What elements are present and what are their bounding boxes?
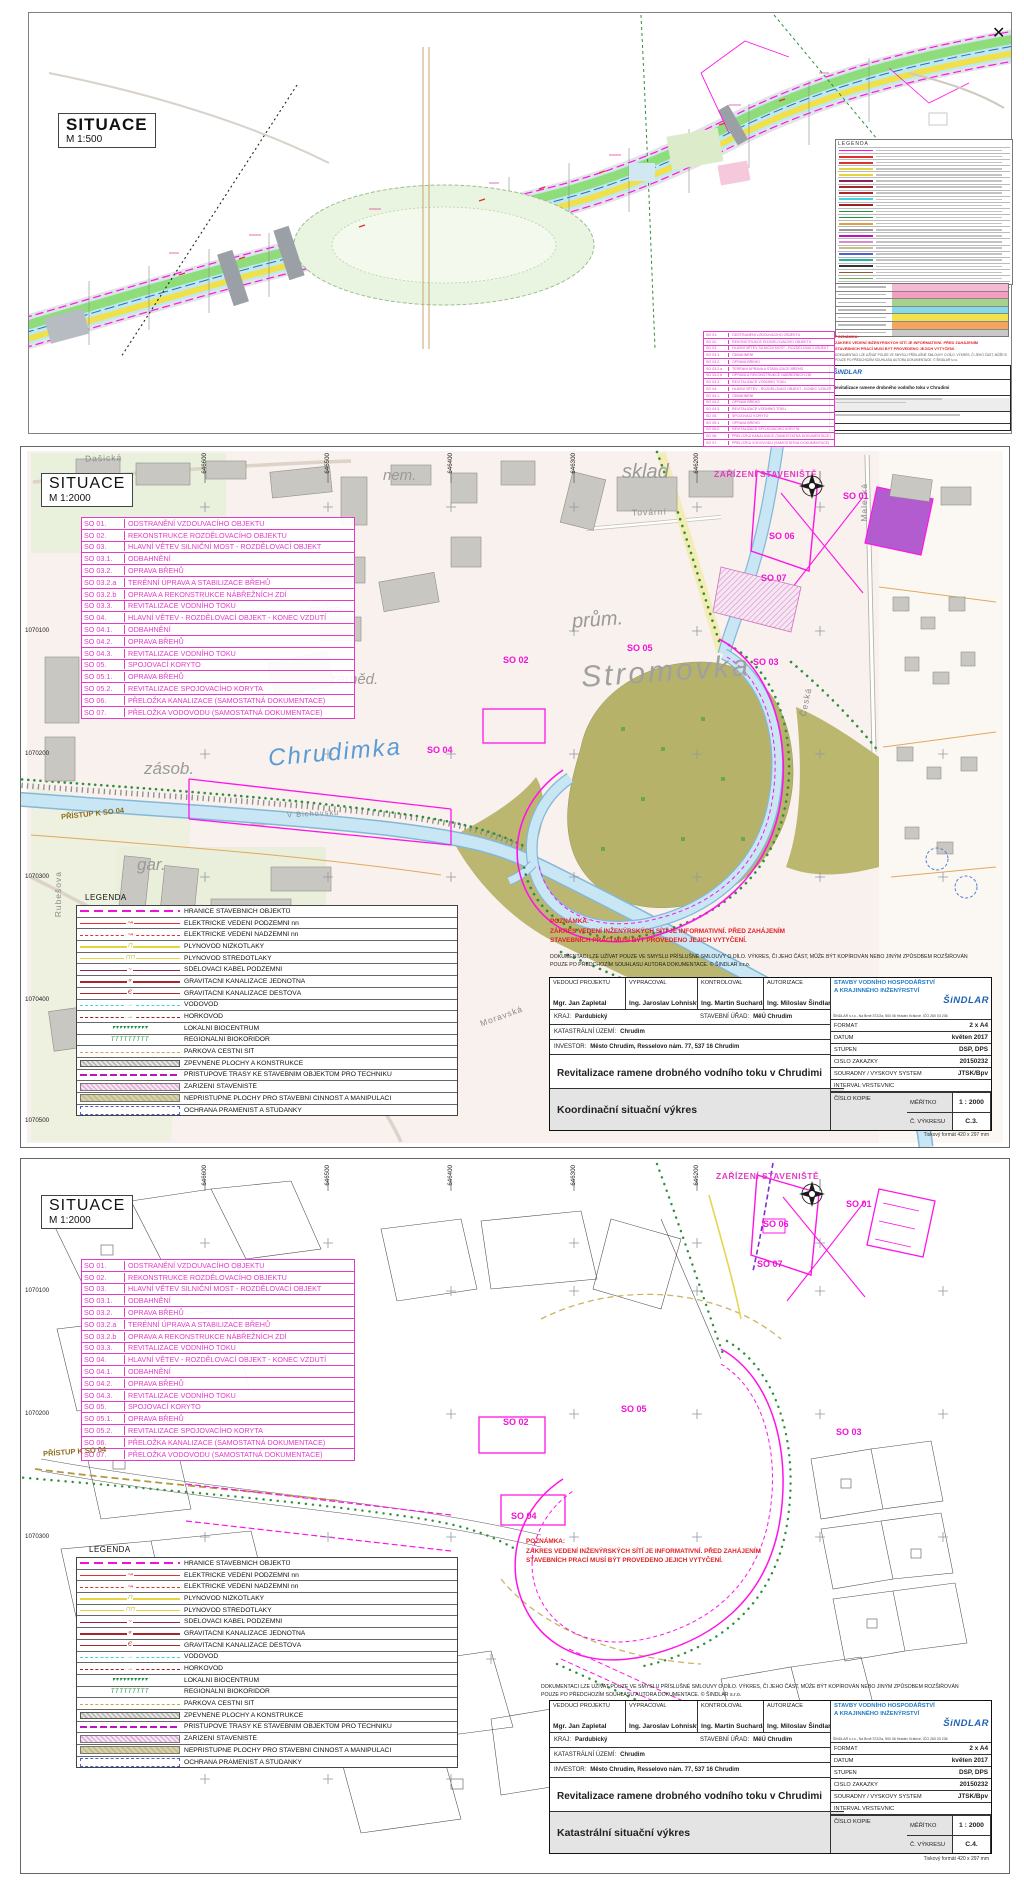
cadastre-row: KATASTRÁLNÍ ÚZEMÍ:Chrudim (550, 1025, 830, 1040)
note-line: STAVEBNÍCH PRACÍ MUSÍ BÝT PROVEDENO JEJI… (526, 1557, 723, 1564)
so-table-row: SO 01. ODSTRANĚNÍ VZDOUVACÍHO OBJEKTU (82, 518, 354, 529)
legend-row: « GRAVITAČNÍ KANALIZACE JEDNOTNÁ (77, 1627, 457, 1639)
legend-label: NEPŘÍSTUPNÉ PLOCHY PRO STAVEBNÍ ČINNOST … (184, 1747, 391, 1754)
so-code: SO 03.1. (82, 1296, 125, 1305)
legend-glyph: ⊓ (127, 1595, 134, 1601)
so-table-row: SO 02. REKONSTRUKCE ROZDĚLOVACÍHO OBJEKT… (82, 529, 354, 541)
field-value: 20150232 (932, 1058, 991, 1065)
legend-swatch (80, 907, 180, 916)
north-arrow-icon (799, 1181, 825, 1207)
title-block-fields: FORMÁT 2 x A4 DATUM květen 2017 STUPEŇ D… (831, 1020, 991, 1092)
so-table-row: SO 02. REKONSTRUKCE ROZDĚLOVACÍHO OBJEKT… (82, 1271, 354, 1283)
so-label: TERÉNNÍ ÚPRAVA A STABILIZACE BŘEHŮ (125, 578, 273, 587)
note-heading: POZNÁMKA: (835, 334, 859, 339)
copyright-block: DOKUMENTACI LZE UŽÍVAT POUZE VE SMYSLU P… (550, 953, 968, 969)
so-code: SO 04.1. (82, 1367, 125, 1376)
legend-swatch: « (80, 1629, 180, 1638)
investor-row: INVESTOR:Město Chrudim, Resselovo nám. 7… (550, 1763, 830, 1778)
role-name: Ing. Jaroslav Lohniský (629, 1723, 694, 1730)
legend-label: HRANICE STAVEBNÍCH OBJEKTŮ (184, 1560, 290, 1567)
so-code: SO 04. (82, 1355, 125, 1364)
so-objects-table: SO 01. ODSTRANĚNÍ VZDOUVACÍHO OBJEKTU SO… (703, 331, 835, 447)
so-table-row: SO 05.1. OPRAVA BŘEHŮ (82, 670, 354, 682)
sheet-number-label: Č. VÝKRESU (907, 1835, 953, 1853)
role-label: KONTROLOVAL (701, 980, 760, 986)
so-label: OPRAVA BŘEHŮ (125, 1379, 187, 1388)
legend-glyph: ↝ (126, 920, 133, 926)
legend-label: ELEKTRICKÉ VEDENÍ NADZEMNÍ nn (184, 1583, 298, 1590)
legend-label: PŘÍSTUPOVÉ TRASY KE STAVEBNÍM OBJEKTŮM P… (184, 1723, 392, 1730)
titleblock-field-row: FORMÁT 2 x A4 (831, 1020, 991, 1032)
legend-row: TTTTTTTTT REGIONÁLNÍ BIOKORIDOR (77, 1686, 457, 1698)
legend-row: ~ SDĚLOVACÍ KABEL PODZEMNÍ (77, 1615, 457, 1627)
northing-label: 1070300 (25, 1533, 49, 1540)
titleblock-field-row: SOUŘADNÝ / VÝŠKOVÝ SYSTÉM JTSK/Bpv (831, 1068, 991, 1080)
legend-row: OCHRANA PRAMENIŠŤ A STUDÁNKY (77, 1756, 457, 1768)
northing-label: 1070200 (25, 750, 49, 757)
so-table-row: SO 04.3. REVITALIZACE VODNÍHO TOKU (704, 405, 834, 412)
legend-label: REGIONÁLNÍ BIOKORIDOR (184, 1036, 270, 1043)
title-block-small: ŠiNDLAR Revitalizace ramene drobného vod… (829, 365, 1011, 431)
street-label-dasicka: Dašická (85, 452, 123, 463)
legend-swatch: → (80, 1664, 180, 1673)
sheet-number-value: C.4. (953, 1835, 991, 1853)
legend-row: PŘÍSTUPOVÉ TRASY KE STAVEBNÍM OBJEKTŮM P… (77, 1721, 457, 1733)
legend-glyph: ⊓ (127, 943, 134, 949)
titleblock-field-row: INTERVAL VRSTEVNIC (831, 1080, 991, 1092)
company-box: STAVBY VODNÍHO HOSPODÁŘSTVÍ A KRAJINNÉHO… (831, 1701, 991, 1743)
so-code: SO 04.3. (82, 1391, 125, 1400)
legend-glyph: ⊓⊓ (124, 1607, 135, 1613)
so-table-row: SO 05.2. REVITALIZACE SPOJOVACÍHO KORYTA (82, 1424, 354, 1436)
legend-row: ⊓⊓ PLYNOVOD STŘEDOTLAKÝ (77, 1604, 457, 1616)
so-table-row: SO 03.2.a TERÉNNÍ ÚPRAVA A STABILIZACE B… (82, 1318, 354, 1330)
drawing-title-box: SITUACE M 1:2000 (41, 1195, 133, 1229)
title-block-roles: VEDOUCÍ PROJEKTU Mgr. Jan Zapletal VYPRA… (550, 978, 830, 1010)
legend-label: PLYNOVOD STŘEDOTLAKÝ (184, 955, 272, 962)
cadastre-row: KATASTRÁLNÍ ÚZEMÍ:Chrudim (550, 1748, 830, 1763)
field-label: DATUM (834, 1758, 932, 1764)
so-label: REVITALIZACE SPOJOVACÍHO KORYTA (125, 684, 266, 693)
so-label: REKONSTRUKCE ROZDĚLOVACÍHO OBJEKTU (125, 1273, 290, 1282)
legend-label: ELEKTRICKÉ VEDENÍ PODZEMNÍ nn (184, 920, 299, 927)
so-code: SO 03.2.a (82, 1320, 125, 1329)
titleblock-role-cell: AUTORIZACE Ing. Miloslav Šindlar (764, 978, 830, 1009)
field-label: ČÍSLO ZAKÁZKY (834, 1059, 932, 1065)
drawing-title-box: SITUACE M 1:2000 (41, 473, 133, 507)
so-table-row: SO 04.1. ODBAHNĚNÍ (82, 1365, 354, 1377)
role-label: VEDOUCÍ PROJEKTU (553, 980, 622, 986)
legend-glyph: ⊓⊓ (124, 955, 135, 961)
so-label: OPRAVA BŘEHŮ (729, 360, 763, 364)
so-table-row: SO 01. ODSTRANĚNÍ VZDOUVACÍHO OBJEKTU (82, 1260, 354, 1271)
legend-swatch: → (80, 1652, 180, 1661)
so-table-row: SO 04.3. REVITALIZACE VODNÍHO TOKU (82, 647, 354, 659)
role-name: Ing. Miloslav Šindlar (767, 1000, 827, 1007)
legend-swatch (80, 1711, 180, 1720)
legend-row: PŘÍSTUPOVÉ TRASY KE STAVEBNÍM OBJEKTŮM P… (77, 1069, 457, 1081)
project-title-small: Revitalizace ramene drobného vodního tok… (830, 380, 1010, 396)
titleblock-role-cell: KONTROLOVAL Ing. Martin Sucharda (698, 1701, 764, 1732)
so-label: HLAVNÍ VĚTEV - ROZDĚLOVACÍ OBJEKT - KONE… (125, 1355, 329, 1364)
so-table-row: SO 04.1. ODBAHNĚNÍ (704, 392, 834, 399)
title-block-roles: VEDOUCÍ PROJEKTU Mgr. Jan Zapletal VYPRA… (550, 1701, 830, 1733)
legend-table: HRANICE STAVEBNÍCH OBJEKTŮ ↝ ELEKTRICKÉ … (76, 1557, 458, 1768)
legend-swatch: TTTTTTTTT (80, 1687, 180, 1696)
legend-glyph: → (126, 1014, 134, 1020)
investor-row: INVESTOR:Město Chrudim, Resselovo nám. 7… (550, 1040, 830, 1055)
so-label: ODBAHNĚNÍ (125, 1296, 174, 1305)
so-table-row: SO 03. HLAVNÍ VĚTEV SILNIČNÍ MOST - ROZD… (704, 345, 834, 352)
scale-label: MĚŘÍTKO (907, 1092, 953, 1112)
northing-label: 1070200 (25, 1410, 49, 1417)
legend-label: GRAVITAČNÍ KANALIZACE DEŠŤOVÁ (184, 1642, 301, 1649)
role-name: Ing. Jaroslav Lohniský (629, 1000, 694, 1007)
site-facility-label: ZAŘÍZENÍ STAVENIŠTĚ (716, 1171, 819, 1181)
note-heading: POZNÁMKA: (526, 1538, 565, 1545)
so-code: SO 05. (82, 1402, 125, 1411)
so-badge-04: SO 04 (511, 1511, 537, 1521)
drawing-title: SITUACE (66, 116, 148, 134)
role-label: AUTORIZACE (767, 980, 827, 986)
so-label: PŘELOŽKA VODOVODU (SAMOSTATNÁ DOKUMENTAC… (125, 1450, 325, 1459)
so-code: SO 03.2.b (82, 1332, 125, 1341)
so-table-row: SO 07. PŘELOŽKA VODOVODU (SAMOSTATNÁ DOK… (82, 1448, 354, 1460)
title-block: VEDOUCÍ PROJEKTU Mgr. Jan Zapletal VYPRA… (549, 1700, 992, 1854)
legend-label: PLYNOVOD STŘEDOTLAKÝ (184, 1607, 272, 1614)
legend-swatch (80, 1106, 180, 1115)
role-label: VYPRACOVAL (629, 1703, 694, 1709)
legend-swatch (80, 1722, 180, 1731)
so-label: REVITALIZACE VODNÍHO TOKU (125, 601, 239, 610)
so-code: SO 03.1. (82, 554, 125, 563)
legend-glyph: ~ (127, 1619, 133, 1625)
so-table-row: SO 04. HLAVNÍ VĚTEV - ROZDĚLOVACÍ OBJEKT… (82, 611, 354, 623)
so-table-row: SO 03.3. REVITALIZACE VODNÍHO TOKU (82, 600, 354, 612)
drawing-name: Katastrální situační výkres (550, 1811, 844, 1853)
field-value: květen 2017 (932, 1034, 991, 1041)
legend-glyph: TTTTTTTTT (110, 1037, 150, 1043)
note-block-small: POZNÁMKA: ZÁKRES VEDENÍ INŽENÝRSKÝCH SÍT… (835, 334, 1007, 363)
legend-row: → HORKOVOD (77, 1662, 457, 1674)
legend-swatch: ⊓⊓ (80, 1606, 180, 1615)
role-name: Mgr. Jan Zapletal (553, 1723, 622, 1730)
legend-swatch (80, 1094, 180, 1103)
legend-glyph: Є (127, 1642, 133, 1648)
so-label: OPRAVA A REKONSTRUKCE NÁBŘEŽNÍCH ZDÍ (125, 590, 290, 599)
so-table-row: SO 03.3. REVITALIZACE VODNÍHO TOKU (82, 1342, 354, 1354)
so-table-row: SO 02. REKONSTRUKCE ROZDĚLOVACÍHO OBJEKT… (704, 338, 834, 345)
pond-oval (294, 185, 594, 305)
titleblock-field-row: STUPEŇ DSP, DPS (831, 1767, 991, 1779)
so-label: ODBAHNĚNÍ (125, 625, 174, 634)
so-code: SO 02. (82, 1273, 125, 1282)
role-label: KONTROLOVAL (701, 1703, 760, 1709)
so-code: SO 03.2. (82, 1308, 125, 1317)
legend-label: PŘÍSTUPOVÉ TRASY KE STAVEBNÍM OBJEKTŮM P… (184, 1071, 392, 1078)
so-label: PŘELOŽKA VODOVODU (SAMOSTATNÁ DOKUMENTAC… (729, 441, 832, 445)
sheet-katastralni-situace: SITUACE M 1:2000 SO 01. ODSTRANĚNÍ VZDOU… (20, 1158, 1010, 1874)
legend-label: ZPEVNĚNÉ PLOCHY A KONSTRUKCE (184, 1712, 303, 1719)
so-label: OPRAVA BŘEHŮ (125, 637, 187, 646)
so-code: SO 05. (82, 660, 125, 669)
so-label: REVITALIZACE SPOJOVACÍHO KORYTA (729, 427, 802, 431)
north-arrow-icon (799, 473, 825, 499)
field-label: STUPEŇ (834, 1770, 932, 1776)
drawing-scale: M 1:500 (66, 134, 148, 145)
so-badge-05: SO 05 (627, 643, 653, 653)
so-badge-06: SO 06 (763, 1219, 789, 1229)
so-code: SO 01. (82, 519, 125, 528)
legend-label: PARKOVÁ CESTNÍ SÍŤ (184, 1048, 254, 1055)
note-block: POZNÁMKA: ZÁKRES VEDENÍ INŽENÝRSKÝCH SÍT… (526, 1537, 761, 1566)
scale-box: MĚŘÍTKO 1 : 2000 ČÍSLO KOPIE Č. VÝKRESU … (831, 1092, 991, 1130)
legend-swatch (80, 1746, 180, 1755)
copyright-line: POUZE PO PŘEDCHOZÍM SOUHLASU AUTORA DOKU… (835, 358, 958, 362)
so-code: SO 03.2. (704, 360, 729, 364)
so-code: SO 04.2. (704, 400, 729, 404)
easting-label: 646400 (447, 453, 454, 474)
so-code: SO 01. (704, 333, 729, 337)
note-line: ZÁKRES VEDENÍ INŽENÝRSKÝCH SÍTÍ JE INFOR… (526, 1548, 761, 1555)
legend-label: HRANICE STAVEBNÍCH OBJEKTŮ (184, 908, 290, 915)
easting-label: 646200 (693, 453, 700, 474)
field-label: FORMÁT (834, 1023, 932, 1029)
company-logo-icon (955, 980, 989, 995)
so-code: SO 01. (82, 1261, 125, 1270)
titleblock-role-cell: AUTORIZACE Ing. Miloslav Šindlar (764, 1701, 830, 1732)
so-label: OPRAVA BŘEHŮ (125, 566, 187, 575)
legend-glyph: ↝ (126, 1572, 133, 1578)
easting-label: 646300 (570, 1165, 577, 1186)
legend-row: PARKOVÁ CESTNÍ SÍŤ (77, 1697, 457, 1709)
so-code: SO 03.3. (82, 1343, 125, 1352)
copyright-line: POUZE PO PŘEDCHOZÍM SOUHLASU AUTORA DOKU… (541, 1692, 741, 1698)
legend-row: Є GRAVITAČNÍ KANALIZACE DEŠŤOVÁ (77, 1639, 457, 1651)
legend-row: ↝ ELEKTRICKÉ VEDENÍ NADZEMNÍ nn (77, 1580, 457, 1592)
so-table-row: SO 03.2.a TERÉNNÍ ÚPRAVA A STABILIZACE B… (82, 576, 354, 588)
so-code: SO 04.3. (82, 649, 125, 658)
so-label: OPRAVA A REKONSTRUKCE NÁBŘEŽNÍCH ZDÍ (729, 373, 814, 377)
sheet-situace-1-500: SITUACE M 1:500 ✕ LEGENDA (28, 12, 1012, 434)
so-code: SO 05.1. (704, 421, 729, 425)
company-brand: ŠiNDLAR (943, 995, 989, 1006)
scale-value: 1 : 2000 (953, 1092, 991, 1112)
so-table-row: SO 06. PŘELOŽKA KANALIZACE (SAMOSTATNÁ D… (82, 694, 354, 706)
so-table-row: SO 03.2.a TERÉNNÍ ÚPRAVA A STABILIZACE B… (704, 365, 834, 372)
legend-row: ↝ ELEKTRICKÉ VEDENÍ NADZEMNÍ nn (77, 928, 457, 940)
so-label: OPRAVA A REKONSTRUKCE NÁBŘEŽNÍCH ZDÍ (125, 1332, 290, 1341)
legend-row: ZPEVNĚNÉ PLOCHY A KONSTRUKCE (77, 1057, 457, 1069)
field-label: INTERVAL VRSTEVNIC (834, 1083, 932, 1089)
so-badge-03: SO 03 (836, 1427, 862, 1437)
titleblock-role-cell: VEDOUCÍ PROJEKTU Mgr. Jan Zapletal (550, 1701, 626, 1732)
legend-swatch: ▾▾▾▾▾▾▾▾▾▾ (80, 1676, 180, 1685)
legend-swatch: ↝ (80, 930, 180, 939)
easting-label: 646400 (447, 1165, 454, 1186)
legend-label: GRAVITAČNÍ KANALIZACE DEŠŤOVÁ (184, 990, 301, 997)
so-table-row: SO 03. HLAVNÍ VĚTEV SILNIČNÍ MOST - ROZD… (82, 541, 354, 553)
company-box: STAVBY VODNÍHO HOSPODÁŘSTVÍ A KRAJINNÉHO… (831, 978, 991, 1020)
so-table-row: SO 05.2. REVITALIZACE SPOJOVACÍHO KORYTA (704, 426, 834, 433)
legend-swatch: ⊓ (80, 1594, 180, 1603)
so-table-row: SO 07. PŘELOŽKA VODOVODU (SAMOSTATNÁ DOK… (704, 439, 834, 446)
so-table-row: SO 04. HLAVNÍ VĚTEV - ROZDĚLOVACÍ OBJEKT… (82, 1353, 354, 1365)
field-label: DATUM (834, 1035, 932, 1041)
role-name: Ing. Miloslav Šindlar (767, 1723, 827, 1730)
so-code: SO 04. (704, 387, 729, 391)
role-label: AUTORIZACE (767, 1703, 827, 1709)
street-label-tovarni: Tovární (632, 506, 667, 517)
legend-title: LEGENDA (85, 893, 127, 902)
legend-label: LOKÁLNÍ BIOCENTRUM (184, 1025, 259, 1032)
legend-swatch (80, 1699, 180, 1708)
print-format-note: Tiskový formát 420 x 297 mm (791, 1132, 989, 1138)
legend-glyph: « (127, 978, 132, 984)
copyright-line: DOKUMENTACI LZE UŽÍVAT POUZE VE SMYSLU P… (835, 353, 1007, 357)
so-label: REVITALIZACE VODNÍHO TOKU (125, 1391, 239, 1400)
legend-glyph: TTTTTTTTT (110, 1689, 150, 1695)
so-badge-04: SO 04 (427, 745, 453, 755)
so-badge-07: SO 07 (757, 1259, 783, 1269)
northing-label: 1070100 (25, 627, 49, 634)
so-label: SPOJOVACÍ KORYTO (125, 1402, 204, 1411)
legend-row: HRANICE STAVEBNÍCH OBJEKTŮ (77, 1558, 457, 1569)
copyright-line: DOKUMENTACI LZE UŽÍVAT POUZE VE SMYSLU P… (541, 1684, 959, 1690)
legend-label: HORKOVOD (184, 1665, 223, 1672)
titleblock-role-cell: VYPRACOVAL Ing. Jaroslav Lohniský (626, 1701, 698, 1732)
field-value: 2 x A4 (932, 1745, 991, 1752)
so-code: SO 03.2.b (704, 373, 729, 377)
legend-glyph: Є (127, 990, 133, 996)
copyright-line: DOKUMENTACI LZE UŽÍVAT POUZE VE SMYSLU P… (550, 954, 968, 960)
legend-row: ZPEVNĚNÉ PLOCHY A KONSTRUKCE (77, 1709, 457, 1721)
legend-row: « GRAVITAČNÍ KANALIZACE JEDNOTNÁ (77, 975, 457, 987)
so-label: HLAVNÍ VĚTEV SILNIČNÍ MOST - ROZDĚLOVACÍ… (125, 542, 324, 551)
legend-label: VODOVOD (184, 1001, 218, 1008)
so-label: HLAVNÍ VĚTEV SILNIČNÍ MOST - ROZDĚLOVACÍ… (729, 346, 832, 350)
legend-label: PARKOVÁ CESTNÍ SÍŤ (184, 1700, 254, 1707)
title-block-right: STAVBY VODNÍHO HOSPODÁŘSTVÍ A KRAJINNÉHO… (830, 1701, 991, 1853)
field-label: INTERVAL VRSTEVNIC (834, 1806, 932, 1812)
title-block-left: VEDOUCÍ PROJEKTU Mgr. Jan Zapletal VYPRA… (550, 978, 830, 1130)
field-value: 20150232 (932, 1781, 991, 1788)
sheet-number-value: C.3. (953, 1112, 991, 1130)
project-title: Revitalizace ramene drobného vodního tok… (550, 1055, 830, 1092)
so-badge-03: SO 03 (753, 657, 779, 667)
legend-swatch: ▾▾▾▾▾▾▾▾▾▾ (80, 1024, 180, 1033)
print-format-note: Tiskový formát 420 x 297 mm (791, 1856, 989, 1862)
title-block-left: VEDOUCÍ PROJEKTU Mgr. Jan Zapletal VYPRA… (550, 1701, 830, 1853)
so-badge-01: SO 01 (846, 1199, 872, 1209)
so-label: OPRAVA BŘEHŮ (125, 1414, 187, 1423)
titleblock-field-row: FORMÁT 2 x A4 (831, 1743, 991, 1755)
easting-label: 646500 (324, 453, 331, 474)
company-brand: ŠiNDLAR (833, 369, 862, 376)
so-code: SO 05. (704, 414, 729, 418)
so-label: ODSTRANĚNÍ VZDOUVACÍHO OBJEKTU (125, 519, 267, 528)
so-table-row: SO 03.2.b OPRAVA A REKONSTRUKCE NÁBŘEŽNÍ… (82, 1330, 354, 1342)
legend-glyph: ↝ (126, 932, 133, 938)
legend-box-small: LEGENDA (835, 139, 1013, 285)
legend-row: ~ SDĚLOVACÍ KABEL PODZEMNÍ (77, 963, 457, 975)
so-code: SO 05.1. (82, 672, 125, 681)
northing-label: 1070500 (25, 1117, 49, 1124)
so-badge-01: SO 01 (843, 491, 869, 501)
company-brand: ŠiNDLAR (943, 1718, 989, 1729)
legend-row: OCHRANA PRAMENIŠŤ A STUDÁNKY (77, 1104, 457, 1116)
legend-row: ZAŘÍZENÍ STAVENIŠTĚ (77, 1080, 457, 1092)
field-value: JTSK/Bpv (932, 1070, 991, 1077)
so-label: ODBAHNĚNÍ (729, 394, 756, 398)
legend-row: → VODOVOD (77, 1651, 457, 1663)
area-label-nem: nem. (383, 467, 416, 484)
legend-swatch: ↝ (80, 1582, 180, 1591)
so-code: SO 03.2.b (82, 590, 125, 599)
legend-row: ▾▾▾▾▾▾▾▾▾▾ LOKÁLNÍ BIOCENTRUM (77, 1022, 457, 1034)
so-code: SO 07. (704, 441, 729, 445)
legend-label: ELEKTRICKÉ VEDENÍ NADZEMNÍ nn (184, 931, 298, 938)
field-value: DSP, DPS (932, 1046, 991, 1053)
legend-swatch: Є (80, 989, 180, 998)
so-table-row: SO 03.1. ODBAHNĚNÍ (82, 552, 354, 564)
legend-swatch: ↝ (80, 919, 180, 928)
legend-swatch: ↝ (80, 1571, 180, 1580)
project-title: Revitalizace ramene drobného vodního tok… (550, 1778, 830, 1815)
scale-box: MĚŘÍTKO 1 : 2000 ČÍSLO KOPIE Č. VÝKRESU … (831, 1815, 991, 1853)
northing-label: 1070400 (25, 996, 49, 1003)
so-table-row: SO 04.1. ODBAHNĚNÍ (82, 623, 354, 635)
so-table-row: SO 04. HLAVNÍ VĚTEV - ROZDĚLOVACÍ OBJEKT… (704, 385, 834, 392)
so-code: SO 05.2. (82, 684, 125, 693)
so-table-row: SO 04.2. OPRAVA BŘEHŮ (82, 1377, 354, 1389)
so-code: SO 04.1. (82, 625, 125, 634)
so-code: SO 07. (82, 708, 125, 717)
note-line: STAVEBNÍCH PRACÍ MUSÍ BÝT PROVEDENO JEJI… (550, 937, 747, 944)
so-code: SO 03.3. (704, 380, 729, 384)
so-badge-02: SO 02 (503, 655, 529, 665)
so-table-row: SO 04.3. REVITALIZACE VODNÍHO TOKU (82, 1389, 354, 1401)
area-label-gar: gar. (137, 855, 166, 875)
so-code: SO 03.3. (82, 601, 125, 610)
legend-swatch: → (80, 1000, 180, 1009)
role-name: Ing. Martin Sucharda (701, 1000, 760, 1007)
titleblock-role-cell: VEDOUCÍ PROJEKTU Mgr. Jan Zapletal (550, 978, 626, 1009)
legend-swatch (80, 1047, 180, 1056)
so-table-row: SO 03.2.b OPRAVA A REKONSTRUKCE NÁBŘEŽNÍ… (704, 372, 834, 379)
drawing-scale: M 1:2000 (49, 1215, 125, 1226)
so-code: SO 05.2. (704, 427, 729, 431)
so-code: SO 06. (82, 696, 125, 705)
legend-row: TTTTTTTTT REGIONÁLNÍ BIOKORIDOR (77, 1034, 457, 1046)
copy-number-label: ČÍSLO KOPIE (831, 1815, 907, 1853)
so-code: SO 03.2. (82, 566, 125, 575)
so-badge-07: SO 07 (761, 573, 787, 583)
note-heading: POZNÁMKA: (550, 918, 589, 925)
legend-row: ↝ ELEKTRICKÉ VEDENÍ PODZEMNÍ nn (77, 1569, 457, 1581)
so-label: ODSTRANĚNÍ VZDOUVACÍHO OBJEKTU (729, 333, 803, 337)
titleblock-role-cell: VYPRACOVAL Ing. Jaroslav Lohniský (626, 978, 698, 1009)
so-label: TERÉNNÍ ÚPRAVA A STABILIZACE BŘEHŮ (729, 367, 806, 371)
so-table-row: SO 04.2. OPRAVA BŘEHŮ (704, 399, 834, 406)
titleblock-field-row: ČÍSLO ZAKÁZKY 20150232 (831, 1779, 991, 1791)
drawing-title-box: SITUACE M 1:500 (58, 113, 156, 148)
so-code: SO 03. (82, 542, 125, 551)
company-logo-icon (982, 367, 1008, 378)
so-label: OPRAVA BŘEHŮ (729, 421, 763, 425)
legend-swatch (80, 1082, 180, 1091)
copyright-line: POUZE PO PŘEDCHOZÍM SOUHLASU AUTORA DOKU… (550, 962, 750, 968)
